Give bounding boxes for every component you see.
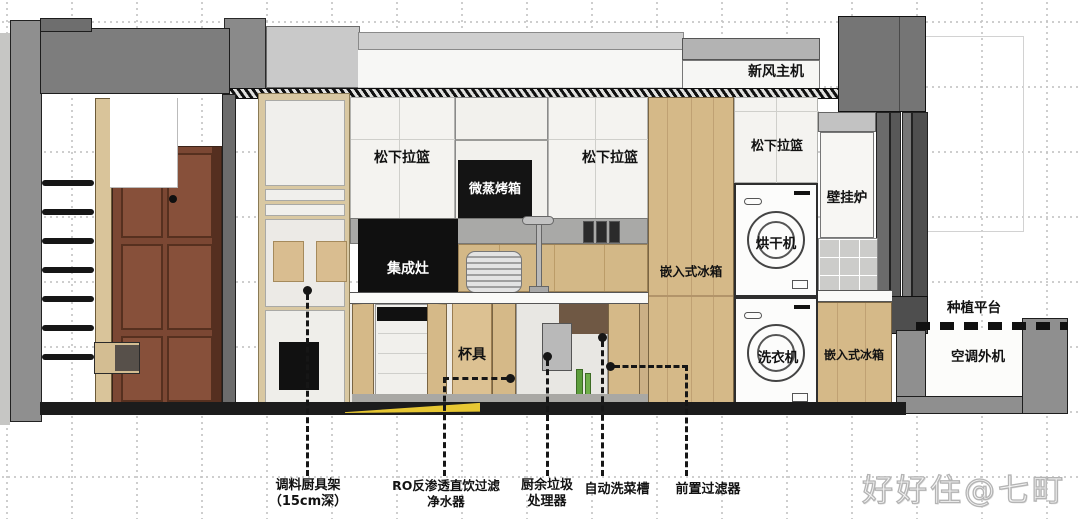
callout-line2: 处理器 bbox=[511, 494, 583, 510]
ceiling-duct-face bbox=[358, 50, 684, 88]
top-left-beam-cap bbox=[40, 18, 92, 32]
dryer-label: 烘干机 bbox=[749, 232, 803, 252]
pullout-basket-left-label: 松下拉篮 bbox=[364, 147, 440, 167]
pantry-cabinet bbox=[258, 93, 350, 408]
boiler-niche-top bbox=[818, 112, 876, 132]
planting-platform-label: 种植平台 bbox=[938, 296, 1010, 316]
door-jamb bbox=[222, 94, 236, 408]
integrated-stove-label: 集成灶 bbox=[366, 258, 450, 278]
base-door-open bbox=[492, 301, 516, 398]
wall-hung-boiler-label: 壁挂炉 bbox=[822, 186, 872, 206]
upper-cabinet-left bbox=[350, 97, 455, 237]
bottle-green bbox=[576, 369, 583, 397]
wall-hung-boiler bbox=[820, 132, 874, 238]
callout-dot bbox=[303, 286, 312, 295]
ladder-rung bbox=[42, 267, 94, 273]
ac-outdoor-unit-label: 空调外机 bbox=[944, 345, 1012, 365]
tiled-wall bbox=[818, 238, 878, 292]
callout-dot bbox=[606, 362, 615, 371]
ac-enclosure-right-wall bbox=[1022, 318, 1068, 414]
pullout-basket-laundry-label: 松下拉篮 bbox=[746, 135, 808, 154]
fresh-air-unit-top bbox=[682, 38, 820, 60]
callout-line bbox=[614, 365, 688, 368]
countertop bbox=[350, 292, 648, 304]
window-frame-post bbox=[912, 112, 928, 306]
spice-jar bbox=[583, 221, 594, 243]
callout-label-pre-filter: 前置过滤器 bbox=[668, 478, 748, 497]
faucet-spout bbox=[522, 216, 554, 225]
pullout-basket-right-label: 松下拉篮 bbox=[572, 147, 648, 167]
callout-line bbox=[443, 377, 507, 380]
callout-line bbox=[546, 360, 549, 476]
bulkhead-light bbox=[266, 26, 360, 88]
balcony-counter bbox=[816, 290, 892, 302]
planting-platform-edge bbox=[916, 322, 1068, 330]
callout-line bbox=[685, 365, 688, 476]
pantry-black-drawer bbox=[279, 342, 319, 390]
bulkhead-dark bbox=[224, 18, 266, 94]
cups-label: 杯具 bbox=[454, 344, 490, 364]
ladder-rung bbox=[42, 296, 94, 302]
ladder-rung bbox=[42, 209, 94, 215]
callout-dot bbox=[506, 374, 515, 383]
fresh-air-unit-label: 新风主机 bbox=[716, 61, 836, 81]
callout-line1: 调料厨具架 bbox=[262, 478, 354, 494]
callout-label-auto-sink: 自动洗菜槽 bbox=[579, 478, 655, 497]
pantry-drawer bbox=[265, 189, 345, 201]
callout-line1: 厨余垃圾 bbox=[511, 478, 583, 494]
built-in-fridge-under-counter-label: 嵌入式冰箱 bbox=[818, 346, 890, 363]
pantry-top-door bbox=[265, 100, 345, 186]
window-frame-post bbox=[890, 112, 901, 306]
callout-label-waste-disposer: 厨余垃圾 处理器 bbox=[511, 478, 583, 510]
built-in-fridge-tall bbox=[648, 97, 734, 408]
base-door-open bbox=[608, 295, 640, 399]
callout-label-spice-rack: 调料厨具架 （15cm深） bbox=[262, 478, 354, 510]
section-drawing: 新风主机 松下拉篮 微蒸烤箱 松下拉篮 集成灶 bbox=[0, 0, 1080, 519]
door-edge-shade bbox=[212, 147, 221, 407]
pantry-wood-door bbox=[316, 241, 347, 282]
right-beam bbox=[838, 16, 926, 112]
faucet bbox=[536, 222, 542, 292]
window-frame-post bbox=[876, 112, 890, 306]
callout-dot bbox=[598, 333, 607, 342]
sink-cabinet-interior bbox=[516, 302, 608, 398]
plate-stack bbox=[466, 251, 522, 293]
ladder-rung bbox=[42, 325, 94, 331]
pantry-wood-door bbox=[273, 241, 304, 282]
callout-line bbox=[601, 341, 604, 476]
pantry-drawer bbox=[265, 204, 345, 216]
callout-dot bbox=[543, 352, 552, 361]
micro-steam-oven-label: 微蒸烤箱 bbox=[458, 178, 532, 197]
ladder-rung bbox=[42, 180, 94, 186]
built-in-fridge-tall-label: 嵌入式冰箱 bbox=[652, 261, 730, 280]
base-door-open bbox=[352, 302, 374, 396]
top-left-beam bbox=[40, 28, 230, 94]
left-wall-column bbox=[10, 20, 42, 422]
callout-line bbox=[306, 294, 309, 476]
left-exterior-strip bbox=[0, 33, 10, 425]
wall-corner-white bbox=[110, 98, 178, 188]
callout-label-ro-purifier: RO反渗透直饮过滤 净水器 bbox=[386, 478, 506, 510]
ladder-rung bbox=[42, 238, 94, 244]
ceiling-duct bbox=[358, 32, 684, 50]
callout-line2: （15cm深） bbox=[262, 494, 354, 510]
key-box bbox=[94, 342, 140, 374]
ladder-rung bbox=[42, 354, 94, 360]
callout-line1: RO反渗透直饮过滤 bbox=[386, 478, 506, 494]
door-knob bbox=[169, 195, 177, 203]
washer-label: 洗衣机 bbox=[751, 346, 805, 366]
spice-jar bbox=[596, 221, 607, 243]
callout-line bbox=[443, 377, 446, 476]
window-frame-post bbox=[902, 112, 912, 306]
stove-cabinet-interior bbox=[375, 304, 429, 396]
callout-line2: 净水器 bbox=[386, 494, 506, 510]
watermark: 好好住@七町 bbox=[862, 465, 1066, 510]
upper-cabinet-right bbox=[548, 97, 648, 237]
spice-jar bbox=[609, 221, 620, 243]
glazing-outline bbox=[924, 36, 1024, 232]
